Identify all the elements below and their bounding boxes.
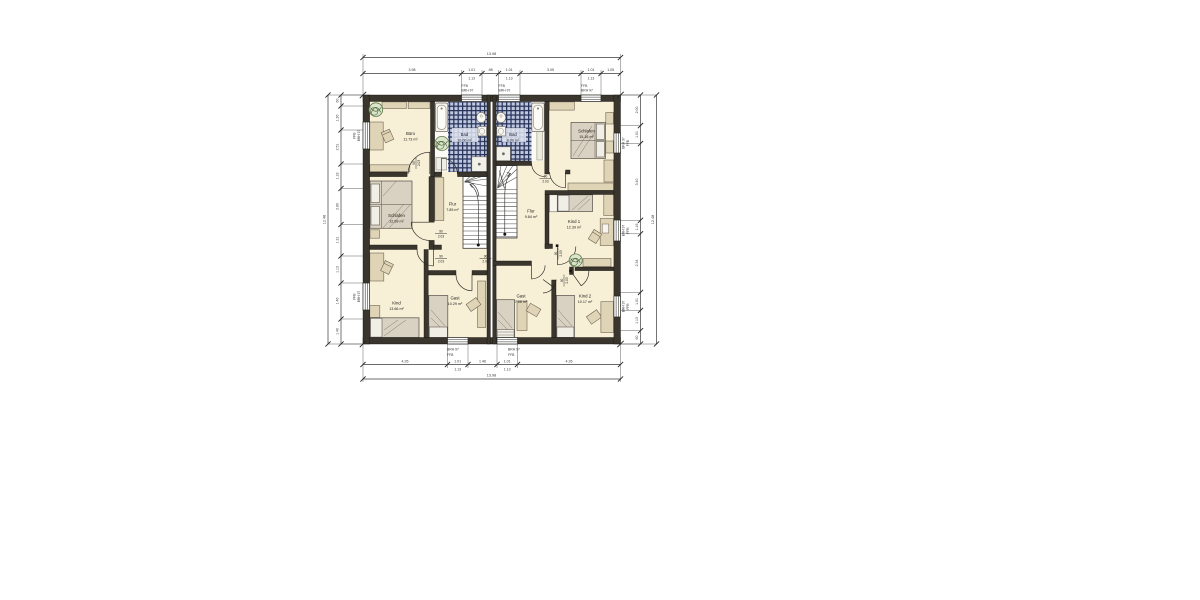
svg-text:2.03: 2.03 xyxy=(438,235,444,239)
svg-text:13.98: 13.98 xyxy=(487,374,497,378)
svg-text:Bad: Bad xyxy=(461,132,469,137)
svg-text:2.03: 2.03 xyxy=(438,260,444,264)
svg-text:BRH 97: BRH 97 xyxy=(622,225,626,237)
svg-text:2.03: 2.03 xyxy=(565,277,569,283)
svg-text:1.31: 1.31 xyxy=(335,237,339,244)
svg-text:90: 90 xyxy=(544,174,548,178)
svg-text:1.13: 1.13 xyxy=(635,317,639,324)
svg-text:1.01: 1.01 xyxy=(454,359,461,363)
svg-text:Gast: Gast xyxy=(450,296,460,301)
svg-text:3.40: 3.40 xyxy=(635,179,639,186)
svg-text:1.13: 1.13 xyxy=(335,266,339,273)
svg-text:2.03: 2.03 xyxy=(559,250,563,256)
svg-text:2.51: 2.51 xyxy=(335,144,339,151)
svg-text:3.98: 3.98 xyxy=(409,68,416,72)
svg-text:8.00 m²: 8.00 m² xyxy=(507,138,520,142)
svg-text:1.01: 1.01 xyxy=(635,298,639,305)
svg-text:Flur: Flur xyxy=(527,209,535,214)
svg-text:4.26: 4.26 xyxy=(402,359,409,363)
svg-text:2.03: 2.03 xyxy=(417,160,421,166)
svg-text:12.48: 12.48 xyxy=(322,215,326,225)
svg-text:90: 90 xyxy=(439,229,443,233)
svg-text:Schlafen: Schlafen xyxy=(388,213,405,218)
svg-text:Flur: Flur xyxy=(449,202,457,207)
svg-text:FFB: FFB xyxy=(581,84,588,88)
svg-text:Gast: Gast xyxy=(516,294,526,299)
svg-text:12.69 m²: 12.69 m² xyxy=(389,219,404,223)
svg-text:13.98: 13.98 xyxy=(487,52,497,56)
svg-text:FFB: FFB xyxy=(447,353,454,357)
svg-text:3.05: 3.05 xyxy=(547,68,554,72)
svg-text:FFB: FFB xyxy=(626,227,630,234)
svg-text:BRH 97: BRH 97 xyxy=(499,88,511,92)
svg-text:1.13: 1.13 xyxy=(504,367,511,371)
svg-text:12.39 m²: 12.39 m² xyxy=(567,225,582,229)
svg-text:1.01: 1.01 xyxy=(468,68,475,72)
svg-text:1.16: 1.16 xyxy=(635,224,639,231)
svg-text:90: 90 xyxy=(554,252,558,256)
svg-text:1.13: 1.13 xyxy=(506,76,513,80)
svg-text:FFB: FFB xyxy=(499,84,506,88)
svg-text:7.66 m²: 7.66 m² xyxy=(515,300,528,304)
svg-text:1.01: 1.01 xyxy=(506,68,513,72)
svg-text:.98: .98 xyxy=(488,68,493,72)
svg-text:1.46: 1.46 xyxy=(335,298,339,305)
svg-text:11.73 m²: 11.73 m² xyxy=(403,137,418,141)
svg-text:Büro: Büro xyxy=(406,131,416,136)
svg-text:1.13: 1.13 xyxy=(588,76,595,80)
svg-text:2.03: 2.03 xyxy=(542,180,548,184)
svg-text:FFB: FFB xyxy=(462,84,469,88)
svg-text:90: 90 xyxy=(439,254,443,258)
svg-text:2.03: 2.03 xyxy=(482,260,488,264)
svg-text:4.26: 4.26 xyxy=(566,359,573,363)
svg-text:90: 90 xyxy=(484,254,488,258)
svg-text:2.00: 2.00 xyxy=(635,107,639,114)
svg-text:Schlafen: Schlafen xyxy=(578,129,595,134)
svg-text:90: 90 xyxy=(412,161,416,165)
svg-text:1.13: 1.13 xyxy=(468,76,475,80)
svg-text:FFB: FFB xyxy=(353,132,357,139)
svg-text:FFB: FFB xyxy=(353,293,357,300)
svg-text:1.26: 1.26 xyxy=(335,115,339,122)
svg-text:FFB: FFB xyxy=(508,353,515,357)
svg-text:60: 60 xyxy=(335,99,339,103)
svg-text:1.40: 1.40 xyxy=(335,328,339,335)
svg-text:FFB: FFB xyxy=(626,303,630,310)
svg-text:BRH 97: BRH 97 xyxy=(581,88,593,92)
svg-text:1.46: 1.46 xyxy=(479,359,486,363)
svg-text:1.18: 1.18 xyxy=(335,173,339,180)
svg-text:7.85 m²: 7.85 m² xyxy=(446,208,459,212)
svg-text:BRH 97: BRH 97 xyxy=(508,348,520,352)
svg-text:90: 90 xyxy=(560,279,564,283)
svg-text:10.17 m²: 10.17 m² xyxy=(578,300,593,304)
svg-text:1.01: 1.01 xyxy=(635,131,639,138)
svg-text:BRH 97: BRH 97 xyxy=(357,291,361,303)
svg-text:9.84 m²: 9.84 m² xyxy=(525,215,538,219)
svg-text:BRH 97: BRH 97 xyxy=(357,130,361,142)
svg-text:60: 60 xyxy=(635,336,639,340)
svg-text:BRH 97: BRH 97 xyxy=(622,301,626,313)
svg-text:FFB: FFB xyxy=(626,139,630,146)
svg-text:13.66 m²: 13.66 m² xyxy=(389,307,404,311)
svg-text:10.29 m²: 10.29 m² xyxy=(448,302,463,306)
svg-text:2.34: 2.34 xyxy=(635,260,639,267)
svg-text:Bad: Bad xyxy=(509,132,517,137)
svg-text:1.05: 1.05 xyxy=(607,68,614,72)
svg-text:Kind 1: Kind 1 xyxy=(568,219,581,224)
svg-text:Kind 2: Kind 2 xyxy=(579,294,592,299)
svg-text:BRH 97: BRH 97 xyxy=(622,137,626,149)
svg-text:BRH 97: BRH 97 xyxy=(462,88,474,92)
svg-text:1.01: 1.01 xyxy=(504,359,511,363)
svg-text:10.00 m²: 10.00 m² xyxy=(457,138,472,142)
svg-text:15.16 m²: 15.16 m² xyxy=(579,135,594,139)
svg-text:1.01: 1.01 xyxy=(588,68,595,72)
svg-text:12.48: 12.48 xyxy=(651,215,655,225)
svg-text:1.13: 1.13 xyxy=(454,367,461,371)
svg-text:BRH 97: BRH 97 xyxy=(447,348,459,352)
svg-text:2.80: 2.80 xyxy=(335,203,339,210)
svg-text:Kind: Kind xyxy=(392,301,401,306)
